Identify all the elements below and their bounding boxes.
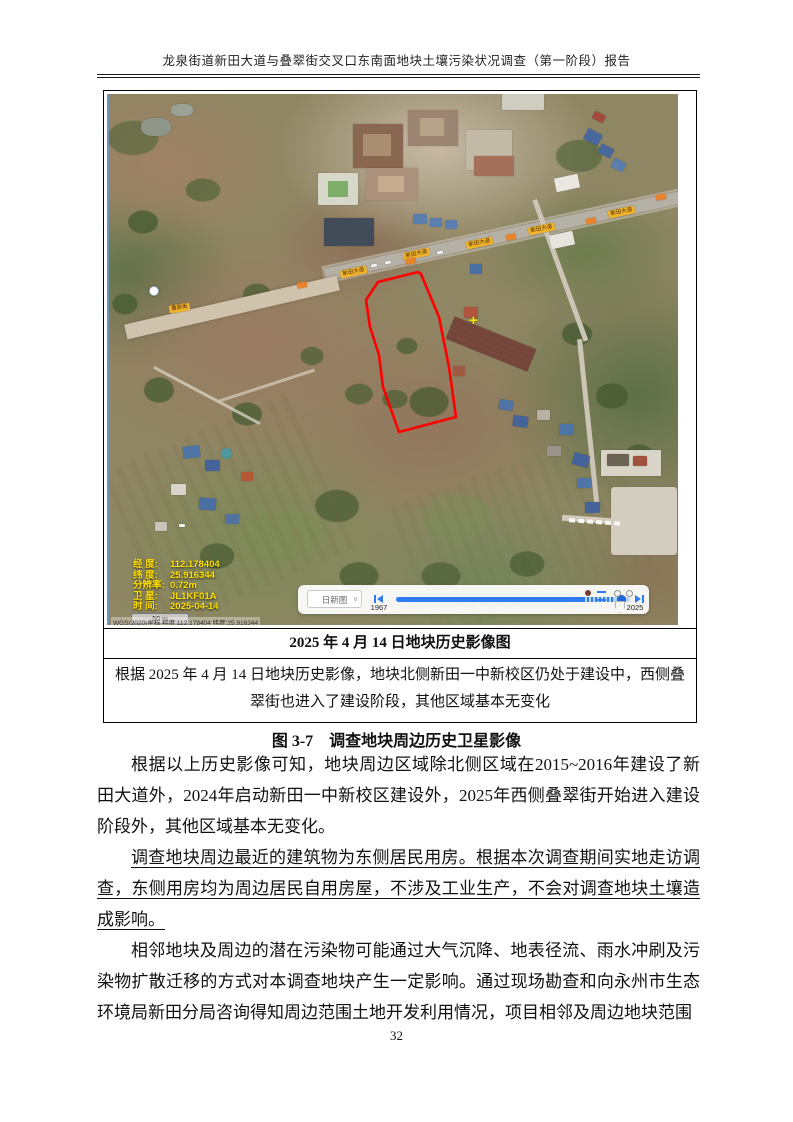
page-header-title: 龙泉街道新田大道与叠翠街交叉口东南面地块土壤污染状况调查（第一阶段）报告 [0, 50, 793, 69]
body-paragraph-1: 根据以上历史影像可知，地块周边区域除北侧区域在2015~2016年建设了新田大道… [97, 749, 700, 842]
layer-dropdown-label: 日新图 [322, 595, 348, 605]
map-info-overlay: 经 度:112.178404 纬 度:25.916344 分辨率:0.72m 卫… [133, 560, 220, 613]
timeline-slider-track[interactable] [396, 597, 630, 602]
date-line: 时 间:2025-04-14 [133, 602, 220, 613]
timeline-end-year: 2025 [618, 603, 652, 612]
body-paragraph-3: 相邻地块及周边的潜在污染物可能通过大气沉降、地表径流、雨水冲刷及污染物扩散迁移的… [97, 935, 700, 1028]
skip-start-button[interactable] [374, 595, 383, 603]
site-boundary-polygon [107, 94, 678, 625]
crosshair-marker: + [469, 316, 478, 326]
header-rule [97, 74, 700, 78]
record-toggle-icon[interactable] [585, 590, 591, 596]
layer-dropdown[interactable]: 日新图 ∨ [307, 590, 362, 608]
chevron-down-icon: ∨ [353, 591, 358, 609]
figure-image-title: 2025 年 4 月 14 日地块历史影像图 [104, 628, 696, 658]
figure-table: + 新田大道 新田大道 新田大道 新田大道 新田大道 叠翠街 经 度:112.1… [103, 90, 697, 723]
report-page: 龙泉街道新田大道与叠翠街交叉口东南面地块土壤污染状况调查（第一阶段）报告 [0, 0, 793, 1122]
image-edge-artifact [107, 94, 109, 625]
skip-start-icon [374, 595, 376, 603]
figure-caption: 图 3-7 调查地块周边历史卫星影像 [0, 727, 793, 751]
zoom-out-icon[interactable] [626, 590, 633, 597]
layer-list-icon[interactable] [597, 591, 606, 601]
page-number: 32 [0, 1028, 793, 1044]
skip-end-icon [635, 595, 641, 603]
zoom-in-icon[interactable] [614, 590, 621, 597]
skip-end-icon [642, 595, 644, 603]
map-status-bar: WGS(2020)坐标 经度:112.178404 纬度:25.916344 [111, 617, 260, 625]
timeline-progress [396, 597, 583, 602]
skip-start-icon [377, 595, 383, 603]
satellite-image: + 新田大道 新田大道 新田大道 新田大道 新田大道 叠翠街 经 度:112.1… [107, 94, 678, 625]
timeline-start-year: 1967 [362, 603, 396, 612]
skip-end-button[interactable] [635, 595, 644, 603]
figure-image-cell: + 新田大道 新田大道 新田大道 新田大道 新田大道 叠翠街 经 度:112.1… [104, 91, 696, 628]
body-paragraph-2-underlined: 调查地块周边最近的建筑物为东侧居民用房。根据本次调查期间实地走访调查，东侧用房均… [97, 842, 700, 935]
timeline-panel: 日新图 ∨ 1967 [298, 585, 649, 614]
figure-image-note: 根据 2025 年 4 月 14 日地块历史影像，地块北侧新田一中新校区仍处于建… [104, 658, 696, 722]
